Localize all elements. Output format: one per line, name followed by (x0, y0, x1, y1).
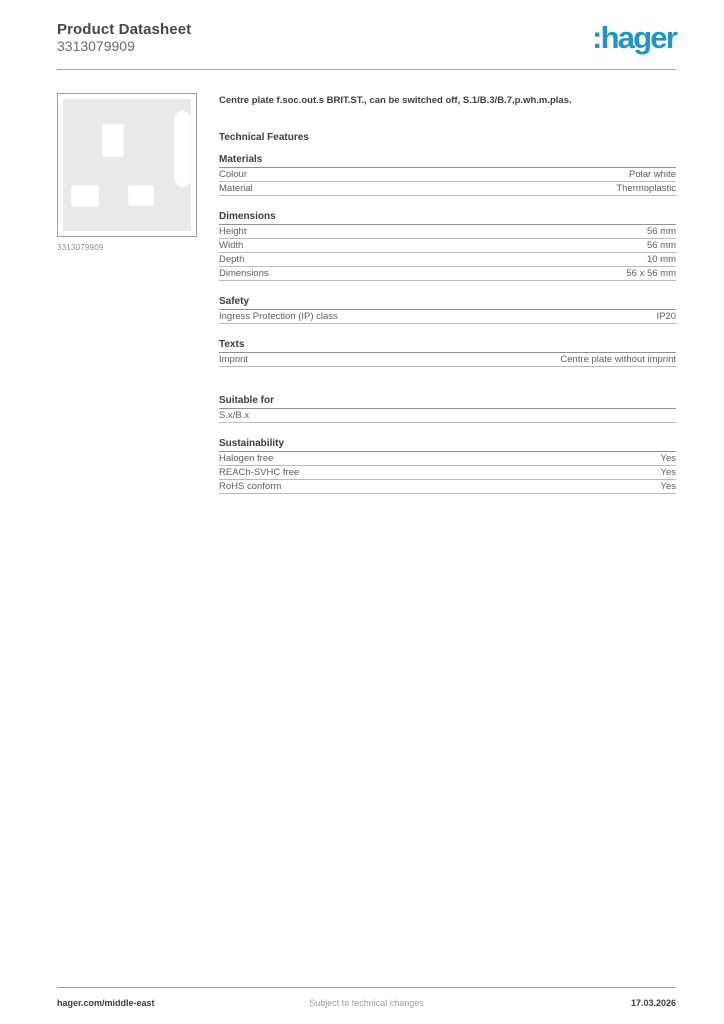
datasheet-page: Product Datasheet 3313079909 :hager 3313… (0, 0, 724, 1024)
spec-label: RoHS conform (219, 482, 281, 492)
spec-label: S.x/B.x (219, 411, 249, 421)
technical-features-heading: Technical Features (219, 132, 676, 143)
section-rows: Imprint Centre plate without imprint (219, 353, 676, 367)
spec-value: Centre plate without imprint (560, 355, 676, 365)
spec-label: Ingress Protection (IP) class (219, 312, 338, 322)
socket-cutout-bottom-centre (128, 185, 154, 206)
spec-label: Material (219, 184, 253, 194)
section-rows: Ingress Protection (IP) class IP20 (219, 310, 676, 324)
product-image (57, 93, 197, 237)
spec-value: Yes (661, 454, 677, 464)
spec-sections: Materials Colour Polar white Material Th… (219, 154, 676, 494)
spec-value: 10 mm (647, 255, 676, 265)
section-title: Dimensions (219, 211, 676, 225)
section-title: Sustainability (219, 438, 676, 452)
product-number: 3313079909 (57, 38, 135, 54)
table-row: Ingress Protection (IP) class IP20 (219, 310, 676, 324)
section-rows: Colour Polar white Material Thermoplasti… (219, 168, 676, 196)
spec-value: Yes (661, 482, 677, 492)
table-row: RoHS conform Yes (219, 480, 676, 494)
spec-value: Polar white (629, 170, 676, 180)
spec-value: Yes (661, 468, 677, 478)
page-header: Product Datasheet 3313079909 :hager (57, 0, 676, 70)
spec-label: REACh-SVHC free (219, 468, 299, 478)
footer-website-link[interactable]: hager.com/middle-east (57, 998, 155, 1008)
table-row: S.x/B.x (219, 409, 676, 423)
spec-label: Width (219, 241, 243, 251)
table-row: Width 56 mm (219, 239, 676, 253)
section-title: Safety (219, 296, 676, 310)
centre-plate-drawing (63, 99, 191, 231)
socket-cutout-bottom-left (71, 185, 99, 207)
spec-label: Depth (219, 255, 244, 265)
table-row: REACh-SVHC free Yes (219, 466, 676, 480)
spec-label: Dimensions (219, 269, 269, 279)
spec-section: Sustainability Halogen free Yes REACh-SV… (219, 438, 676, 494)
table-row: Material Thermoplastic (219, 182, 676, 196)
product-image-column: 3313079909 (57, 93, 197, 252)
spec-value: 56 x 56 mm (626, 269, 676, 279)
product-image-caption: 3313079909 (57, 243, 197, 252)
spec-label: Imprint (219, 355, 248, 365)
section-title: Suitable for (219, 395, 676, 409)
hager-logo: :hager (592, 22, 676, 53)
spec-label: Height (219, 227, 246, 237)
table-row: Depth 10 mm (219, 253, 676, 267)
footer-notice: Subject to technical changes (309, 998, 424, 1008)
socket-cutout-top (102, 124, 124, 157)
spec-label: Colour (219, 170, 247, 180)
spec-section: Safety Ingress Protection (IP) class IP2… (219, 296, 676, 324)
table-row: Dimensions 56 x 56 mm (219, 267, 676, 281)
spec-value: IP20 (656, 312, 676, 322)
section-title: Texts (219, 339, 676, 353)
content-column: Centre plate f.soc.out.s BRIT.ST., can b… (219, 95, 676, 494)
spec-section: Dimensions Height 56 mm Width 56 mm Dept… (219, 211, 676, 281)
section-title: Materials (219, 154, 676, 168)
section-rows: Height 56 mm Width 56 mm Depth 10 mm Dim… (219, 225, 676, 281)
product-description: Centre plate f.soc.out.s BRIT.ST., can b… (219, 95, 676, 106)
section-rows: S.x/B.x (219, 409, 676, 423)
page-title: Product Datasheet (57, 21, 191, 38)
section-rows: Halogen free Yes REACh-SVHC free Yes RoH… (219, 452, 676, 494)
table-row: Height 56 mm (219, 225, 676, 239)
spec-section: Texts Imprint Centre plate without impri… (219, 339, 676, 367)
switch-slot-right (174, 111, 192, 187)
spec-section: Suitable for S.x/B.x (219, 395, 676, 423)
table-row: Imprint Centre plate without imprint (219, 353, 676, 367)
table-row: Colour Polar white (219, 168, 676, 182)
page-footer: hager.com/middle-east Subject to technic… (57, 987, 676, 1008)
footer-date: 17.03.2026 (631, 998, 676, 1008)
spec-value: Thermoplastic (616, 184, 676, 194)
spec-value: 56 mm (647, 241, 676, 251)
table-row: Halogen free Yes (219, 452, 676, 466)
spec-section: Materials Colour Polar white Material Th… (219, 154, 676, 196)
spec-value: 56 mm (647, 227, 676, 237)
spec-label: Halogen free (219, 454, 273, 464)
